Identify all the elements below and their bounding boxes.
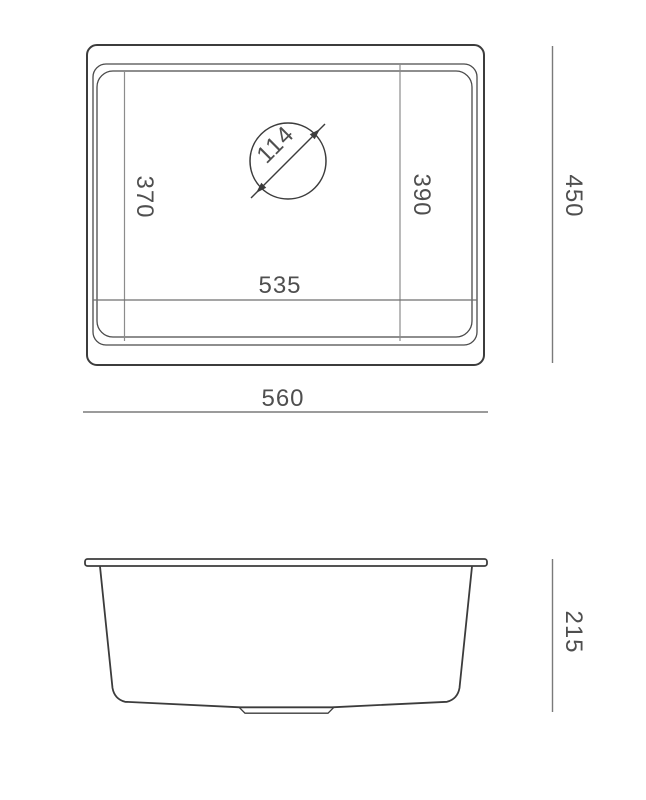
side-flange [85, 559, 487, 566]
dim-label-215: 215 [560, 610, 587, 653]
side-view: 215 [85, 559, 587, 713]
dim-label-390: 390 [408, 173, 435, 216]
dim-label-560: 560 [261, 385, 304, 412]
sink-drawing-svg: 114 370 390 535 560 450 215 [0, 0, 646, 800]
dim-label-535: 535 [258, 272, 301, 299]
dim-label-370: 370 [131, 175, 158, 218]
dim-label-450: 450 [560, 174, 587, 217]
top-view: 114 370 390 535 560 450 [83, 45, 587, 412]
side-bowl-profile [100, 567, 472, 708]
dim-label-drain-114: 114 [252, 121, 300, 169]
technical-drawing-canvas: 114 370 390 535 560 450 215 [0, 0, 646, 800]
